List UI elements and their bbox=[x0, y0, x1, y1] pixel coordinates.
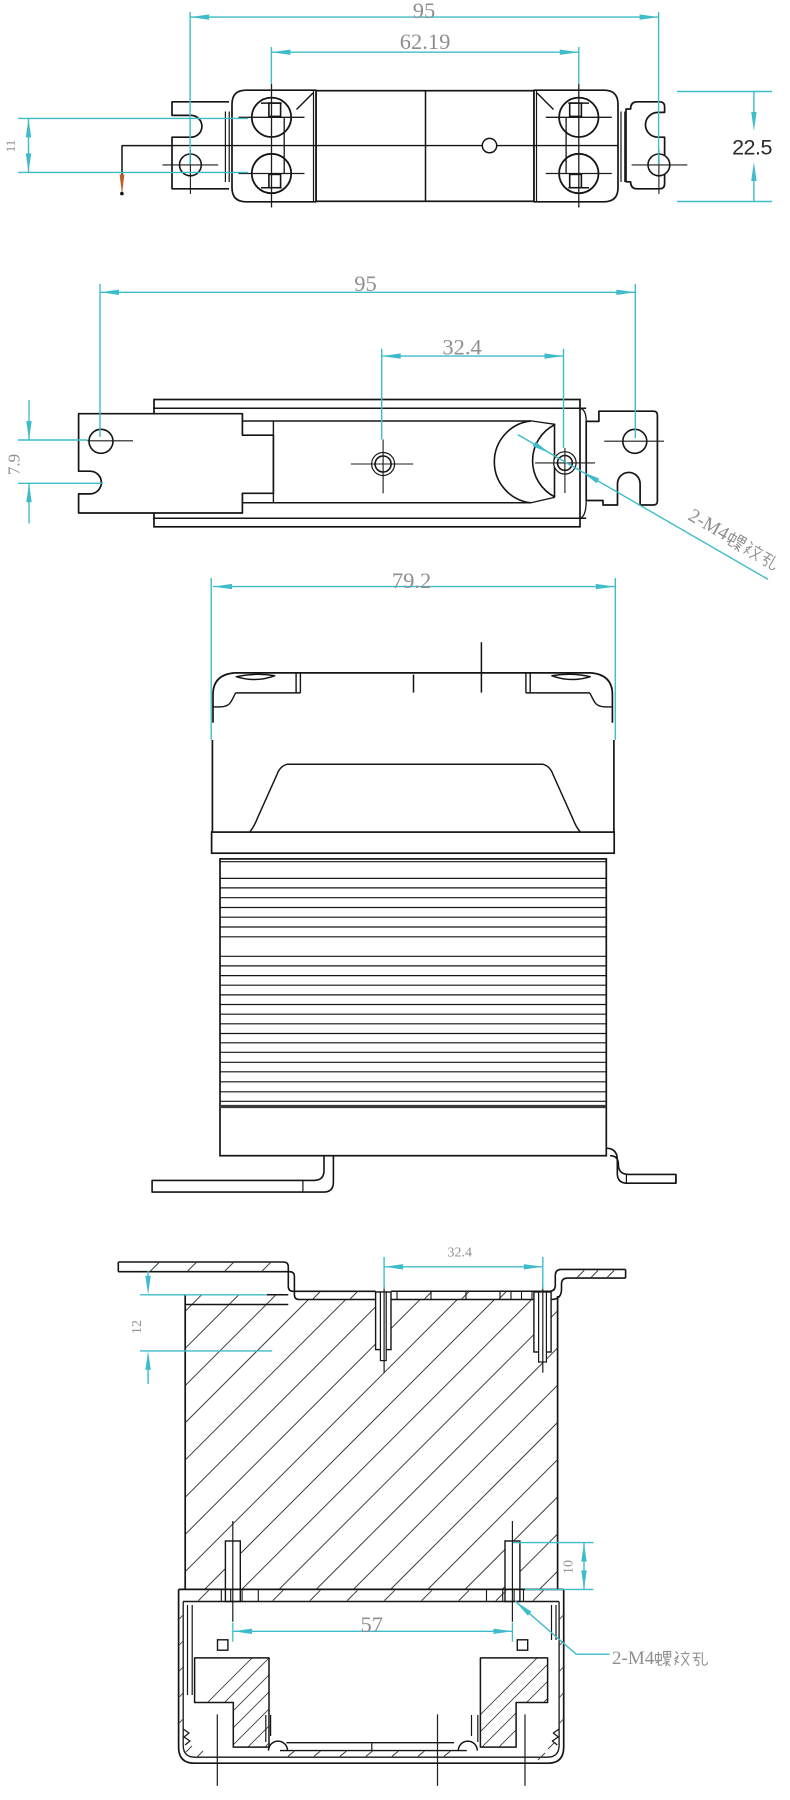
svg-text:10: 10 bbox=[562, 1560, 577, 1574]
svg-text:95: 95 bbox=[413, 0, 436, 23]
svg-text:57: 57 bbox=[360, 1612, 383, 1637]
svg-text:95: 95 bbox=[354, 271, 377, 296]
svg-text:2-M4: 2-M4 bbox=[612, 1648, 655, 1669]
svg-text:62.19: 62.19 bbox=[400, 29, 451, 54]
svg-text:79.2: 79.2 bbox=[392, 568, 431, 593]
svg-text:7.9: 7.9 bbox=[5, 454, 24, 475]
svg-text:32.4: 32.4 bbox=[442, 335, 481, 360]
svg-text:22.5: 22.5 bbox=[732, 136, 772, 160]
svg-text:32.4: 32.4 bbox=[447, 1245, 472, 1260]
svg-text:11: 11 bbox=[3, 140, 18, 153]
svg-text:12: 12 bbox=[130, 1320, 145, 1334]
